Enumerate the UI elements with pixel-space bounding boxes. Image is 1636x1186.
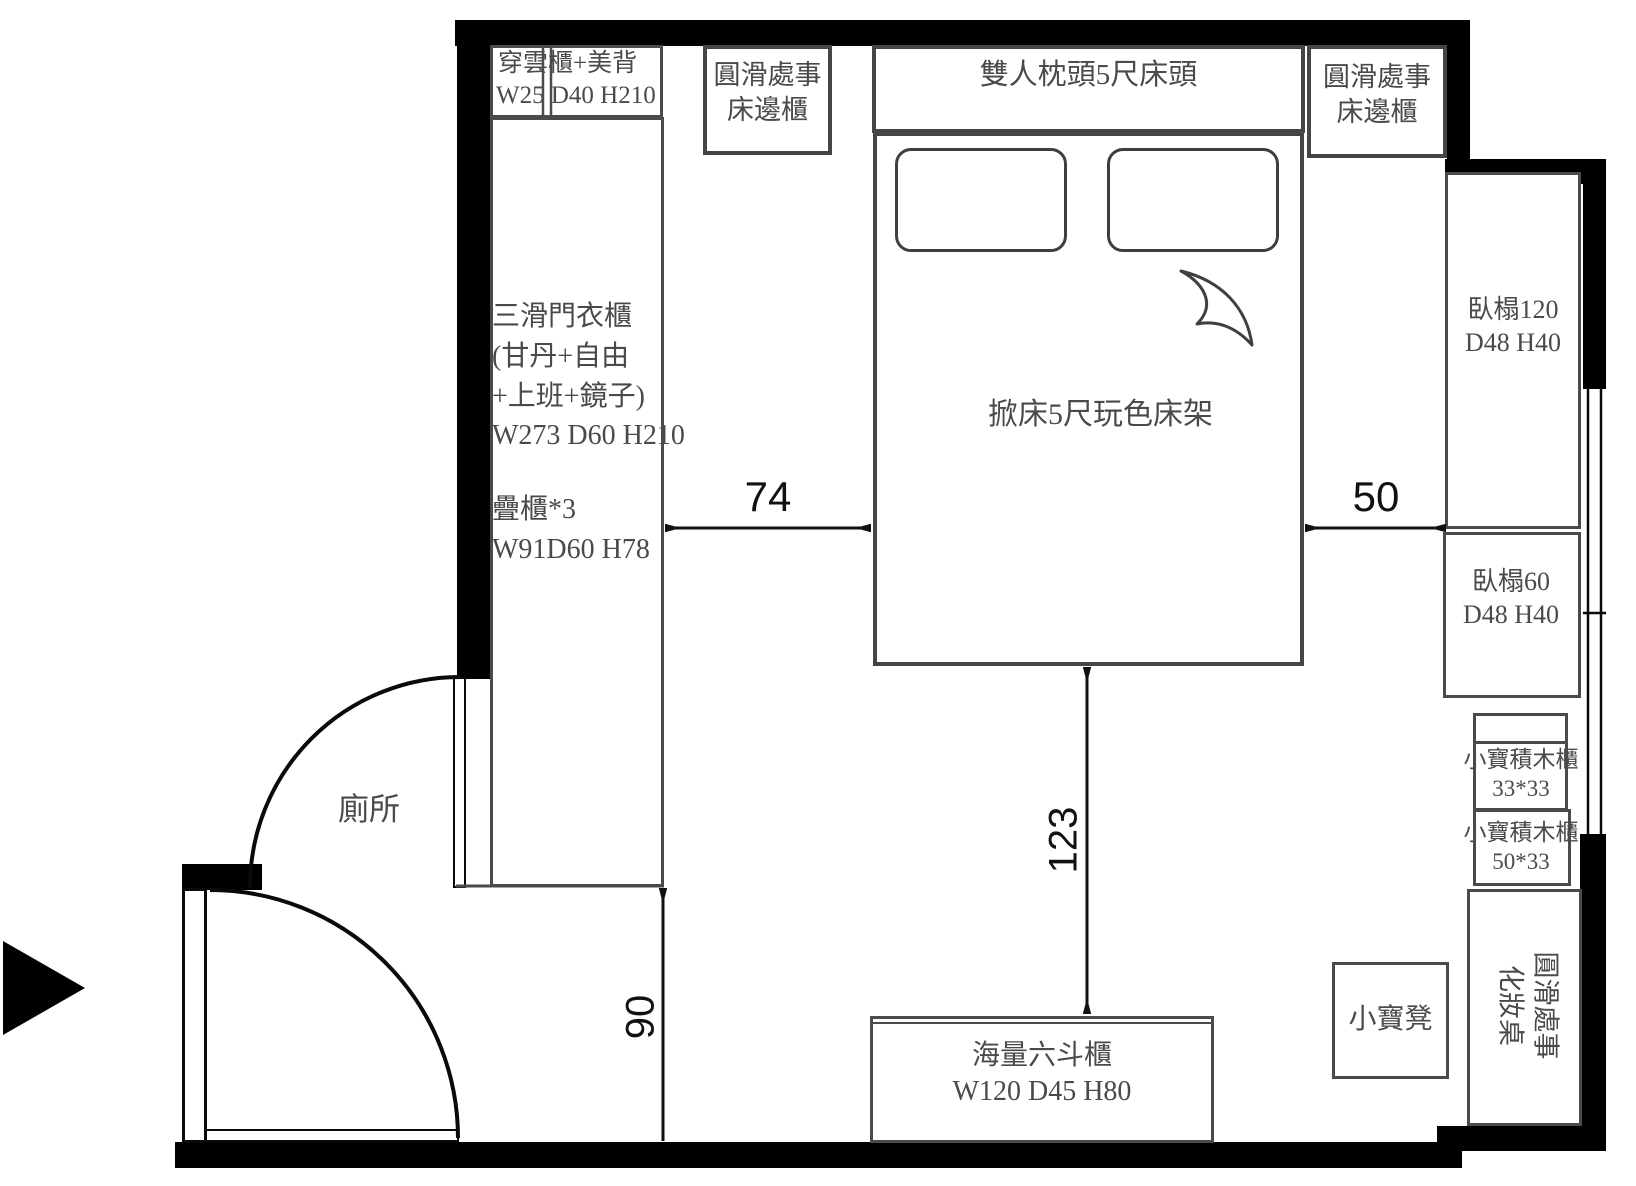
wall-right-lower	[1580, 834, 1606, 1128]
dresser-line1: 海量六斗櫃	[870, 1038, 1214, 1074]
dim-74: 74	[745, 473, 792, 521]
dim-123: 123	[1042, 807, 1087, 874]
bedside-right-line1: 圓滑處事	[1307, 60, 1447, 95]
wall-bottom-right	[1437, 1126, 1606, 1151]
block-33-line2: 33*33	[1455, 774, 1587, 803]
wardrobe-line6: W91D60 H78	[492, 530, 685, 570]
entry-door-leaf	[205, 1129, 459, 1142]
dim-50: 50	[1353, 473, 1400, 521]
bedside-right-line2: 床邊櫃	[1307, 95, 1447, 130]
block-33-line1: 小寶積木櫃	[1455, 745, 1587, 774]
bench-60-line2: D48 H40	[1441, 598, 1581, 631]
pillow-left	[895, 148, 1067, 252]
bench-60-line1: 臥榻60	[1441, 565, 1581, 598]
block-50-line1: 小寶積木櫃	[1455, 818, 1587, 847]
wall-toilet-stub	[182, 864, 262, 890]
dim-90: 90	[619, 995, 664, 1040]
headboard-label: 雙人枕頭5尺床頭	[872, 57, 1305, 94]
bedside-left-label: 圓滑處事 床邊櫃	[703, 58, 832, 127]
bench-60-label: 臥榻60 D48 H40	[1441, 565, 1581, 632]
dresser-line2: W120 D45 H80	[870, 1074, 1214, 1110]
entry-arrow	[3, 941, 85, 1035]
stool-label: 小寶凳	[1332, 1002, 1449, 1038]
block-33-label: 小寶積木櫃 33*33	[1455, 745, 1587, 804]
wall-step	[1437, 1126, 1462, 1168]
cabinet-top-left-label-2: W25 D40 H210	[496, 80, 656, 112]
bench-120-label: 臥榻120 D48 H40	[1443, 293, 1583, 360]
bedside-left-line2: 床邊櫃	[703, 93, 832, 128]
block-cabinet-empty	[1473, 713, 1568, 744]
block-50-label: 小寶積木櫃 50*33	[1455, 818, 1587, 877]
toilet-label: 廁所	[338, 790, 400, 830]
wardrobe-line4: W273 D60 H210	[492, 416, 685, 456]
toilet-door-arc	[250, 677, 460, 887]
vanity-line2: 化妝桌	[1493, 931, 1528, 1081]
bed-label: 掀床5尺玩色床架	[873, 396, 1328, 434]
wardrobe-line1: 三滑門衣櫃	[492, 297, 685, 337]
toilet-door-leaf	[453, 677, 466, 888]
block-50-line2: 50*33	[1455, 847, 1587, 876]
cabinet-top-left-label-1: 穿雲櫃+美背	[498, 48, 637, 80]
wall-bottom	[175, 1142, 1461, 1168]
wall-left	[457, 20, 490, 679]
vanity-line1: 圓滑處事	[1528, 931, 1563, 1081]
bench-120-line1: 臥榻120	[1443, 293, 1583, 326]
bench-120-line2: D48 H40	[1443, 326, 1583, 359]
bedside-right-label: 圓滑處事 床邊櫃	[1307, 60, 1447, 129]
wardrobe-label: 三滑門衣櫃 (甘丹+自由 +上班+鏡子) W273 D60 H210 疊櫃*3 …	[492, 297, 685, 570]
pillow-right	[1107, 148, 1279, 252]
wall-right-upper	[1583, 184, 1606, 389]
floor-plan: 穿雲櫃+美背 W25 D40 H210 圓滑處事 床邊櫃 雙人枕頭5尺床頭 圓滑…	[0, 0, 1636, 1186]
bedside-left-line1: 圓滑處事	[703, 58, 832, 93]
wardrobe-line2: (甘丹+自由	[492, 337, 685, 377]
wardrobe-line5: 疊櫃*3	[492, 490, 685, 530]
dresser-label: 海量六斗櫃 W120 D45 H80	[870, 1038, 1214, 1110]
vanity-label: 圓滑處事 化妝桌	[1493, 931, 1562, 1081]
wardrobe-line3: +上班+鏡子)	[492, 377, 685, 417]
entry-door-arc	[210, 890, 458, 1138]
wall-top	[455, 20, 1470, 46]
entry-side-wall	[182, 888, 207, 1143]
